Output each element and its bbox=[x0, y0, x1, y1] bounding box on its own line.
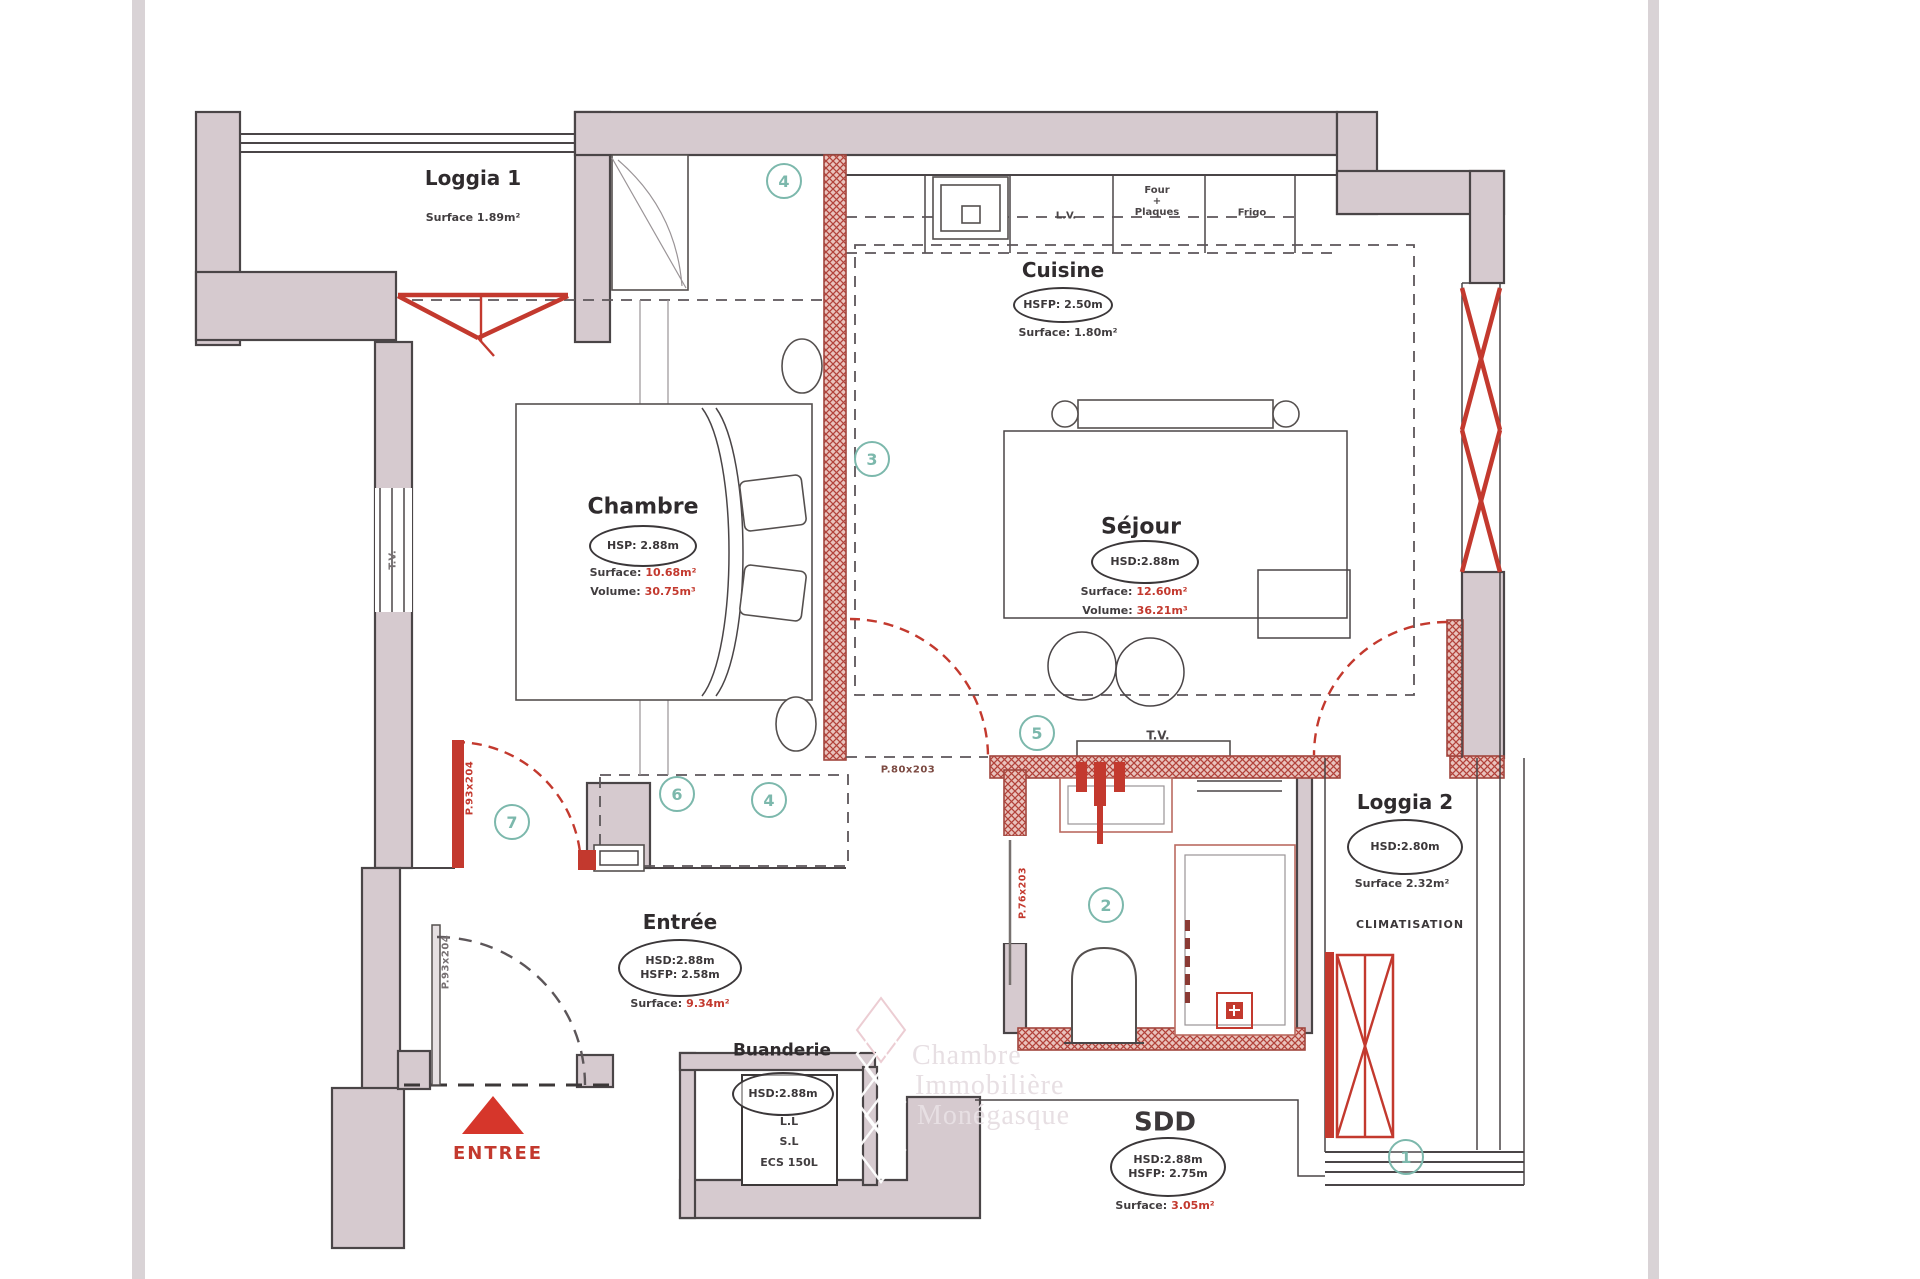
chambre-surface-label: Surface: bbox=[590, 567, 642, 579]
sejour-ceiling-dashed bbox=[855, 245, 1414, 695]
appliance-lv: L.V. bbox=[1056, 210, 1076, 221]
nightstand bbox=[776, 697, 816, 751]
sdd-surface: Surface:3.05m² bbox=[1115, 1200, 1214, 1212]
room-name-cuisine: Cuisine bbox=[1022, 259, 1104, 281]
chair bbox=[1052, 401, 1078, 427]
chambre-surface: Surface:10.68m² bbox=[590, 567, 697, 579]
watermark-line3: Monégasque bbox=[917, 1102, 1070, 1130]
chambre-height-ellipse: HSP: 2.88m bbox=[589, 525, 697, 567]
loggia1-window-band bbox=[240, 134, 575, 152]
tap bbox=[1076, 762, 1087, 792]
loggia2-hsd: HSD:2.80m bbox=[1370, 840, 1439, 854]
room-name-sdd: SDD bbox=[1134, 1108, 1196, 1137]
chair bbox=[1273, 401, 1299, 427]
chambre-volume-label: Volume: bbox=[590, 586, 640, 598]
pillow bbox=[739, 564, 807, 621]
marker-2: 2 bbox=[1088, 887, 1124, 923]
door-label-sejour: P.80x203 bbox=[881, 764, 936, 775]
door-label-entry: P.93x204 bbox=[440, 935, 451, 990]
door-label-chambre: P.93x204 bbox=[464, 761, 475, 816]
climatisation-label: CLIMATISATION bbox=[1356, 919, 1464, 931]
room-name-loggia1: Loggia 1 bbox=[425, 167, 521, 189]
loggia1-red-window bbox=[398, 295, 568, 356]
tap bbox=[1114, 762, 1125, 792]
buanderie-hsd: HSD:2.88m bbox=[748, 1087, 817, 1101]
sejour-surface-label: Surface: bbox=[1081, 586, 1133, 598]
sejour-volume: Volume:36.21m³ bbox=[1082, 605, 1187, 617]
interior-partitions bbox=[412, 845, 846, 871]
buanderie-ll: L.L bbox=[780, 1116, 798, 1128]
marker-7: 7 bbox=[494, 804, 530, 840]
climatisation-unit bbox=[1325, 952, 1393, 1138]
chambre-volume-value: 30.75m³ bbox=[645, 586, 696, 598]
entree-arrow-label: ENTREE bbox=[453, 1144, 543, 1164]
marker-6: 6 bbox=[659, 776, 695, 812]
cuisine-surface: Surface: 1.80m² bbox=[1018, 327, 1117, 339]
entree-arrow-icon bbox=[462, 1096, 524, 1134]
cuisine-hsfp: HSFP: 2.50m bbox=[1023, 298, 1103, 312]
sdd-surface-value: 3.05m² bbox=[1171, 1200, 1214, 1212]
entree-surface: Surface:9.34m² bbox=[630, 998, 729, 1010]
tv-console bbox=[1077, 741, 1230, 757]
chambre-surface-value: 10.68m² bbox=[645, 567, 696, 579]
room-name-entree: Entrée bbox=[643, 911, 717, 933]
chambre-volume: Volume:30.75m³ bbox=[590, 586, 695, 598]
marker-4: 4 bbox=[766, 163, 802, 199]
side-table bbox=[1258, 570, 1350, 638]
nightstand bbox=[782, 339, 822, 393]
loggia2-surface: Surface 2.32m² bbox=[1355, 878, 1450, 890]
entree-hsd: HSD:2.88m bbox=[645, 954, 714, 968]
buanderie-height-ellipse: HSD:2.88m bbox=[732, 1072, 834, 1116]
entree-hsfp: HSFP: 2.58m bbox=[640, 968, 720, 982]
sejour-volume-value: 36.21m³ bbox=[1137, 605, 1188, 617]
watermark-line2: Immobilière bbox=[915, 1072, 1064, 1100]
marker-5: 5 bbox=[1019, 715, 1055, 751]
watermark-line1: Chambre bbox=[912, 1042, 1022, 1070]
bench bbox=[1078, 400, 1273, 428]
pillow bbox=[739, 474, 807, 531]
outer-walls bbox=[196, 112, 1504, 1248]
sdd-hsfp: HSFP: 2.75m bbox=[1128, 1167, 1208, 1181]
room-name-sejour: Séjour bbox=[1101, 516, 1181, 541]
marker-4b: 4 bbox=[751, 782, 787, 818]
appliance-four-plaques: Four + Plaques bbox=[1135, 185, 1180, 219]
floor-plan-page: Loggia 1 Surface 1.89m² Cuisine HSFP: 2.… bbox=[0, 0, 1920, 1279]
sdd-surface-label: Surface: bbox=[1115, 1200, 1167, 1212]
sejour-volume-label: Volume: bbox=[1082, 605, 1132, 617]
entree-height-ellipse: HSD:2.88m HSFP: 2.58m bbox=[618, 939, 742, 997]
armchair bbox=[1048, 632, 1116, 700]
room-name-buanderie: Buanderie bbox=[733, 1041, 831, 1060]
door-arc-sejour bbox=[850, 619, 988, 757]
sejour-height-ellipse: HSD:2.88m bbox=[1091, 540, 1199, 584]
tap bbox=[1094, 762, 1106, 806]
chambre-hsp: HSP: 2.88m bbox=[607, 539, 679, 553]
door-loggia2 bbox=[1314, 620, 1463, 756]
loggia2-height-ellipse: HSD:2.80m bbox=[1347, 819, 1463, 875]
marker-1: 1 bbox=[1388, 1139, 1424, 1175]
sdd-hsd: HSD:2.88m bbox=[1133, 1153, 1202, 1167]
room-name-loggia2: Loggia 2 bbox=[1357, 791, 1453, 813]
sejour-hsd: HSD:2.88m bbox=[1110, 555, 1179, 569]
loggia1-surface: Surface 1.89m² bbox=[426, 212, 521, 224]
marker-3: 3 bbox=[854, 441, 890, 477]
entree-surface-value: 9.34m² bbox=[686, 998, 729, 1010]
buanderie-ecs: ECS 150L bbox=[760, 1157, 818, 1169]
appliance-frigo: Frigo bbox=[1238, 207, 1267, 218]
room-name-chambre: Chambre bbox=[587, 496, 698, 521]
duct-shaft bbox=[612, 155, 688, 290]
buanderie-sl: S.L bbox=[779, 1136, 798, 1148]
toilet bbox=[1072, 948, 1136, 1043]
cuisine-height-ellipse: HSFP: 2.50m bbox=[1013, 287, 1113, 323]
door-label-sdd: P.76x203 bbox=[1019, 867, 1030, 919]
tv-wall-label: T.V. bbox=[1146, 729, 1169, 742]
red-hatched-walls bbox=[824, 155, 1504, 1050]
entree-closet bbox=[594, 845, 644, 871]
sejour-surface-value: 12.60m² bbox=[1136, 586, 1187, 598]
sdd-height-ellipse: HSD:2.88m HSFP: 2.75m bbox=[1110, 1137, 1226, 1197]
sejour-surface: Surface:12.60m² bbox=[1081, 586, 1188, 598]
entree-surface-label: Surface: bbox=[630, 998, 682, 1010]
tv-window-label: T.V. bbox=[387, 550, 398, 569]
